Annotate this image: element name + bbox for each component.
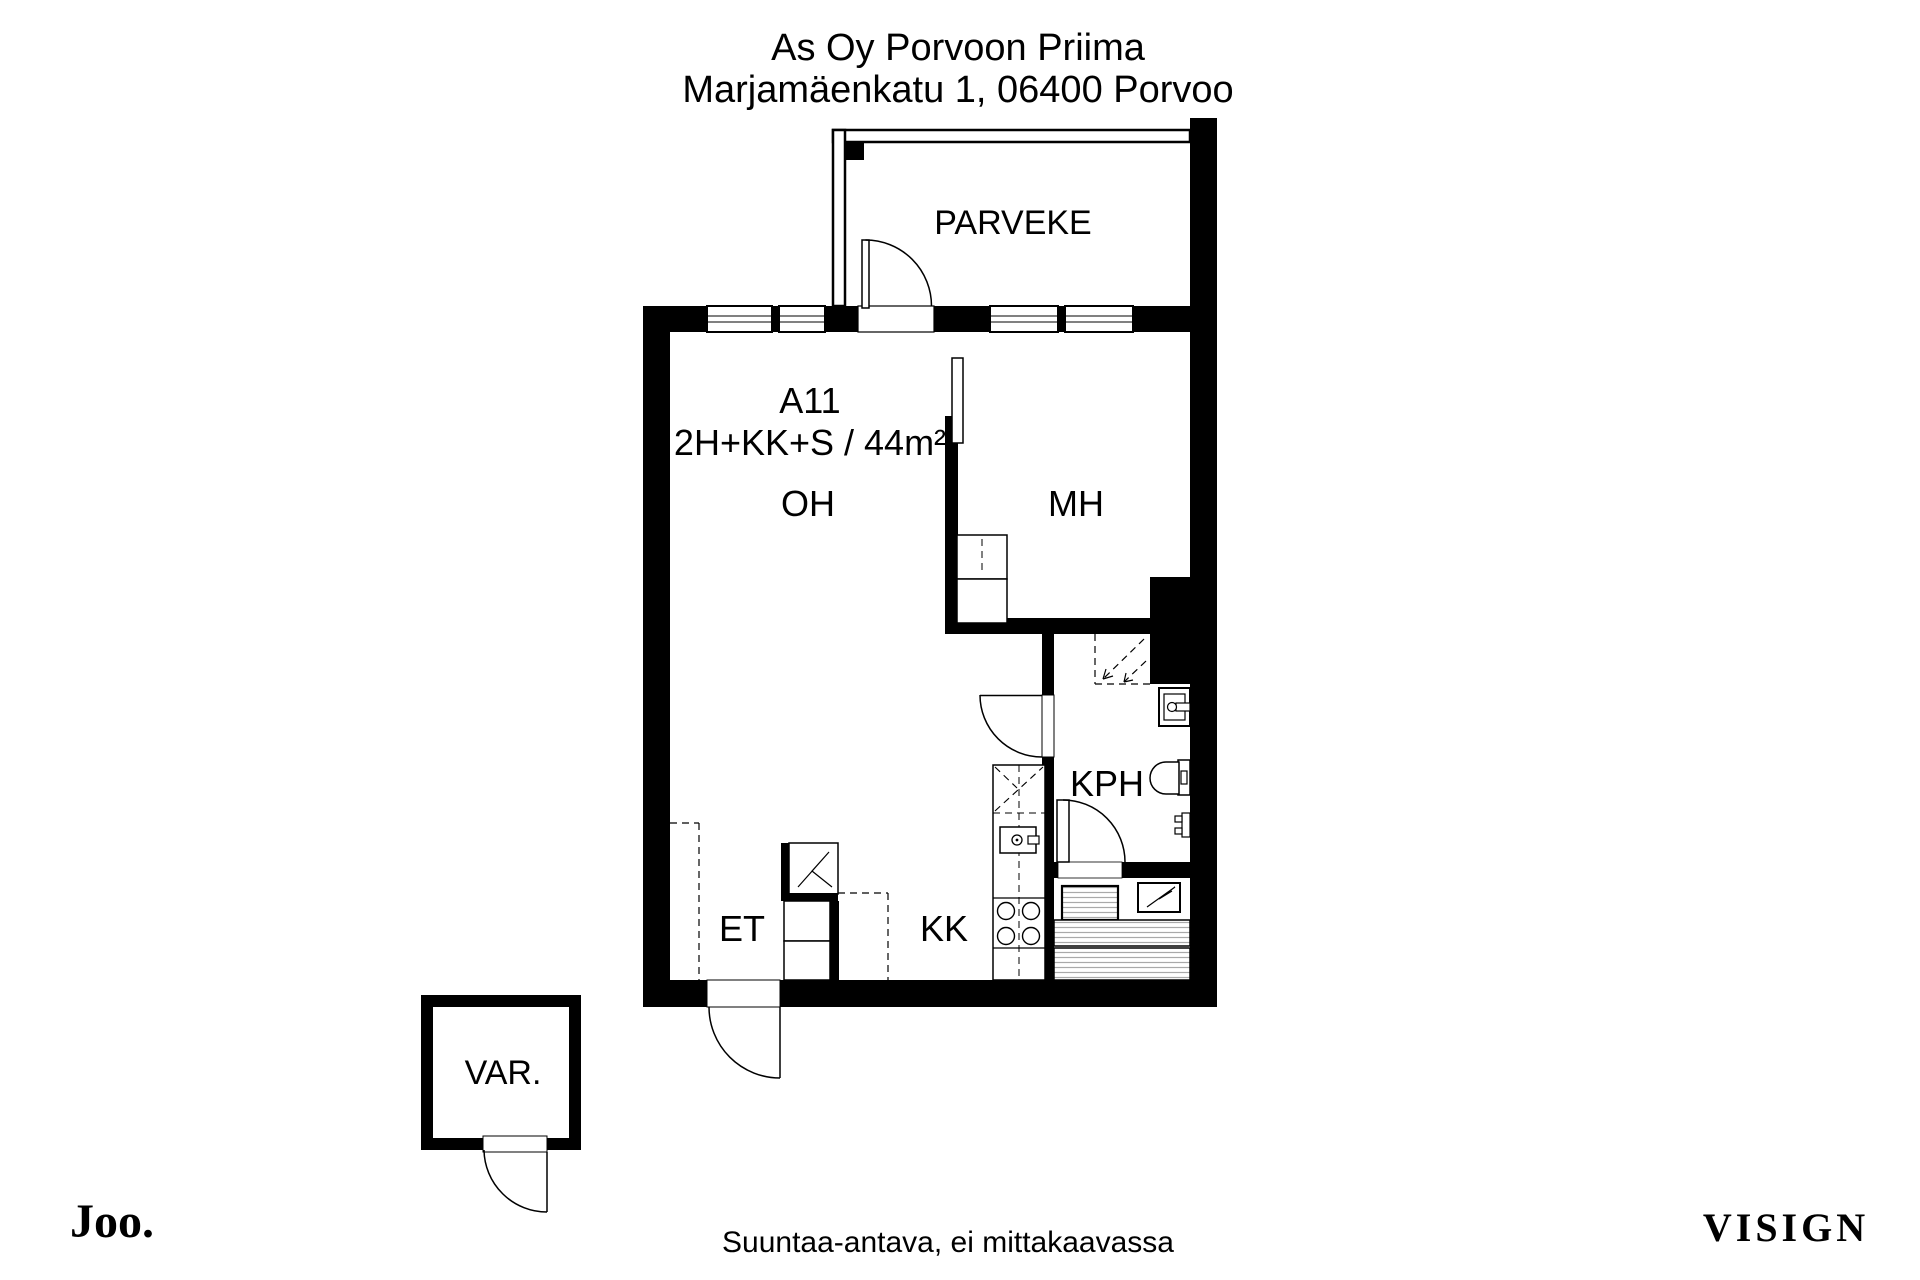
sauna-bench bbox=[1054, 920, 1190, 946]
sauna-bench bbox=[1062, 886, 1118, 920]
window-mullion bbox=[1058, 306, 1065, 332]
unit-type-area-label: 2H+KK+S / 44m² bbox=[674, 422, 946, 463]
shower-arrowheads bbox=[1103, 669, 1133, 682]
storage-door-opening bbox=[483, 1136, 547, 1152]
window bbox=[707, 306, 772, 332]
balcony: PARVEKE bbox=[833, 130, 1190, 306]
building-name: As Oy Porvoon Priima bbox=[771, 27, 1146, 69]
hall-cabinet bbox=[784, 901, 839, 980]
electrical-cabinet-icon bbox=[781, 843, 838, 901]
top-wall-segment bbox=[934, 306, 990, 332]
bedroom-label: MH bbox=[1048, 483, 1104, 524]
window bbox=[779, 306, 825, 332]
window bbox=[1065, 306, 1133, 332]
bathroom-door-arc bbox=[980, 695, 1042, 757]
agency-logo: Joo. bbox=[70, 1195, 154, 1248]
top-wall-segment bbox=[825, 306, 858, 332]
sauna bbox=[1042, 800, 1190, 980]
bottom-wall-segment bbox=[643, 980, 707, 1007]
shower-arrow-dashes bbox=[1103, 639, 1146, 682]
right-wall bbox=[1190, 118, 1217, 1007]
bathroom-west-wall bbox=[1042, 634, 1054, 695]
bathroom-door-opening bbox=[1042, 695, 1054, 757]
front-door-opening bbox=[707, 980, 780, 1007]
kitchen-sink-icon bbox=[1000, 827, 1039, 853]
sauna-door-leaf bbox=[1057, 800, 1069, 862]
sauna-door-arc bbox=[1063, 800, 1125, 862]
living-room-label: OH bbox=[781, 483, 835, 524]
floorplan-page: As Oy Porvoon Priima Marjamäenkatu 1, 06… bbox=[0, 0, 1920, 1280]
shower-mixer-icon bbox=[1175, 813, 1190, 837]
structural-column bbox=[1150, 577, 1190, 684]
balcony-door-opening bbox=[858, 306, 934, 332]
bedroom: MH bbox=[945, 358, 1190, 684]
balcony-pillar bbox=[846, 142, 864, 160]
left-wall bbox=[643, 306, 670, 1007]
bedroom-partition-wall bbox=[945, 416, 958, 634]
building-address: Marjamäenkatu 1, 06400 Porvoo bbox=[682, 69, 1233, 111]
sauna-bench bbox=[1054, 948, 1190, 980]
storage-room: VAR. bbox=[421, 995, 581, 1212]
hallway: ET bbox=[670, 823, 839, 980]
hallway-label: ET bbox=[719, 908, 765, 949]
sliding-door bbox=[952, 358, 963, 443]
toilet-icon bbox=[1150, 760, 1190, 795]
unit-id-label: A11 bbox=[779, 380, 840, 421]
balcony-door bbox=[858, 240, 934, 332]
watermark-text: VISIGN bbox=[1703, 1205, 1869, 1250]
bottom-wall-segment bbox=[780, 980, 1217, 1007]
sauna-heater-icon bbox=[1138, 883, 1180, 912]
bathroom-label: KPH bbox=[1070, 763, 1144, 804]
balcony-door-leaf bbox=[862, 240, 869, 308]
balcony-railing-top bbox=[833, 130, 1190, 142]
front-door-arc bbox=[709, 1007, 780, 1078]
kitchenette-label: KK bbox=[920, 908, 968, 949]
front-door bbox=[707, 980, 780, 1078]
window-mullion bbox=[772, 306, 779, 332]
sauna-north-wall bbox=[1122, 862, 1190, 878]
balcony-door-arc bbox=[866, 240, 932, 306]
kitchen-reservation-dashes bbox=[838, 893, 888, 980]
disclaimer-text: Suuntaa-antava, ei mittakaavassa bbox=[722, 1226, 1174, 1259]
storage-label: VAR. bbox=[465, 1054, 542, 1092]
sauna-door-opening bbox=[1058, 862, 1122, 878]
wardrobe bbox=[957, 579, 1007, 623]
living-room: A11 2H+KK+S / 44m² OH bbox=[674, 380, 946, 524]
closet-reservation-dashes bbox=[670, 823, 699, 980]
balcony-label: PARVEKE bbox=[934, 204, 1091, 242]
balcony-railing-left bbox=[833, 130, 845, 306]
storage-door-arc bbox=[484, 1150, 547, 1212]
window bbox=[990, 306, 1058, 332]
washbasin-icon bbox=[1159, 688, 1190, 726]
kitchenette: KK bbox=[838, 765, 1045, 980]
